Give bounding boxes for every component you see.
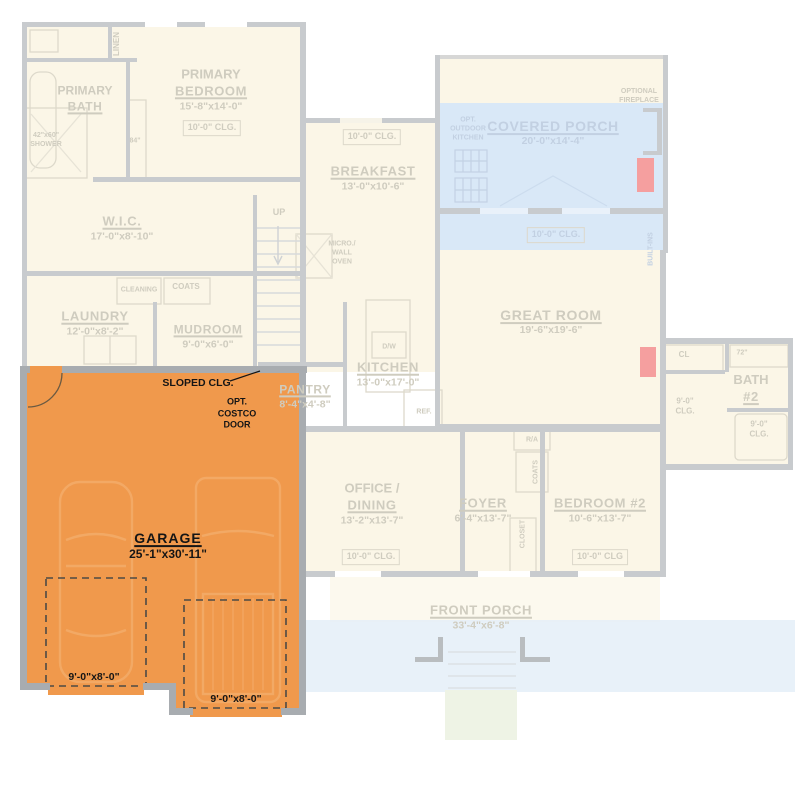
label-pantry: PANTRY8'-4"x4'-8" <box>279 382 331 411</box>
label-sloped-clg: SLOPED CLG. <box>162 377 233 391</box>
label-bedroom2: BEDROOM #210'-6"x13'-7" <box>554 496 646 527</box>
label-cl: CL <box>679 350 690 360</box>
label-built-ins: BUILT-INS <box>646 232 655 266</box>
label-ref: REF. <box>416 407 431 416</box>
label-linen: LINEN <box>112 32 122 56</box>
label-covered-porch-clg: 10'-0" CLG. <box>527 227 585 243</box>
lawn-patch <box>445 690 517 740</box>
label-primary-bath: PRIMARYBATH <box>58 83 113 114</box>
label-opt-costco-door: OPT.COSTCODOOR <box>218 396 257 431</box>
label-bedroom2-clg: 10'-0" CLG <box>572 549 628 565</box>
label-ra: R/A <box>526 435 538 444</box>
label-breakfast-clg: 10'-0" CLG. <box>343 129 401 145</box>
label-cleaning: CLEANING <box>121 285 158 294</box>
label-shower: 42"x60"SHOWER <box>30 131 62 149</box>
garage-door-apron-right <box>190 708 282 717</box>
label-mudroom: MUDROOM9'-0"x6'-0" <box>174 322 243 351</box>
label-hall-clg: 9'-0"CLG. <box>675 397 694 418</box>
label-closet-foyer: CLOSET <box>518 520 527 548</box>
label-office-dining: OFFICE /DINING 13'-2"x13'-7" <box>341 480 404 527</box>
label-dw: D/W <box>382 342 396 351</box>
label-micro-wall-oven: MICRO./WALLOVEN <box>328 239 355 266</box>
label-laundry: LAUNDRY12'-0"x8'-2" <box>61 309 128 340</box>
label-primary-bedroom-clg: 10'-0" CLG. <box>183 120 241 136</box>
floor-plan-canvas: LINEN PRIMARYBATH PRIMARYBEDROOM 15'-8"x… <box>0 0 800 800</box>
label-primary-bedroom: PRIMARYBEDROOM 15'-8"x14'-0" <box>175 66 247 113</box>
label-up: UP <box>273 207 286 219</box>
label-vanity-72: 72" <box>736 348 747 357</box>
label-kitchen: KITCHEN13'-0"x17'-0" <box>357 360 420 391</box>
label-vanity-84: 84" <box>129 136 140 145</box>
label-covered-porch: COVERED PORCH20'-0"x14'-4" <box>487 117 618 149</box>
label-coats-foyer: COATS <box>531 460 540 484</box>
label-garage-door-right: 9'-0"x8'-0" <box>210 693 261 707</box>
label-great-room: GREAT ROOM19'-6"x19'-6" <box>500 306 601 338</box>
label-wic: W.I.C.17'-0"x8'-10" <box>91 214 154 245</box>
label-coats-mudroom: COATS <box>172 282 199 292</box>
label-opt-outdoor-kitchen: OPT.OUTDOORKITCHEN <box>450 115 486 142</box>
label-foyer: FOYER6'-4"x13'-7" <box>455 496 512 527</box>
label-garage-door-left: 9'-0"x8'-0" <box>68 671 119 685</box>
garage-door-apron-left <box>48 686 144 695</box>
label-front-porch: FRONT PORCH33'-4"x6'-8" <box>430 603 532 634</box>
label-breakfast: BREAKFAST13'-0"x10'-6" <box>331 164 416 195</box>
label-office-clg: 10'-0" CLG. <box>342 549 400 565</box>
front-porch-tint <box>306 620 795 692</box>
label-optional-fireplace: OPTIONALFIREPLACE <box>619 87 659 105</box>
closet-marker <box>640 347 656 377</box>
fireplace-marker <box>637 158 654 192</box>
label-bath2-clg: 9'-0"CLG. <box>749 420 768 441</box>
label-garage: GARAGE25'-1"x30'-11" <box>129 529 207 563</box>
label-bath2: BATH#2 <box>733 372 768 406</box>
